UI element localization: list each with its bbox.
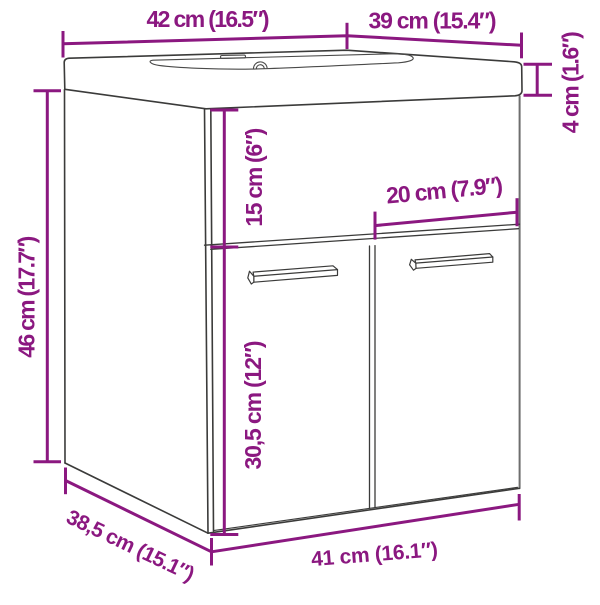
svg-text:30,5 cm (12″): 30,5 cm (12″): [240, 341, 266, 470]
svg-text:4 cm (1.6″): 4 cm (1.6″): [558, 31, 584, 133]
svg-text:15 cm (6″): 15 cm (6″): [241, 128, 267, 227]
svg-text:42 cm (16.5″): 42 cm (16.5″): [147, 6, 270, 32]
svg-text:46 cm (17.7″): 46 cm (17.7″): [14, 236, 40, 358]
svg-text:39 cm (15.4″): 39 cm (15.4″): [369, 8, 497, 34]
